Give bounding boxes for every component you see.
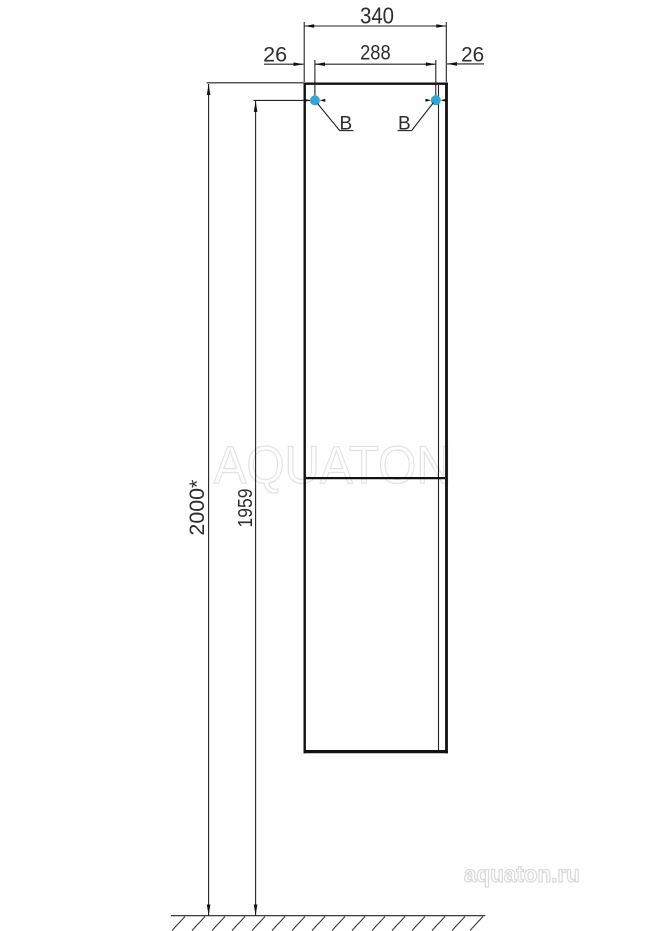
svg-text:26: 26 bbox=[263, 44, 287, 67]
svg-text:2000*: 2000* bbox=[186, 480, 209, 536]
svg-text:288: 288 bbox=[360, 42, 391, 65]
svg-text:B: B bbox=[339, 113, 352, 134]
svg-text:aquaton.ru: aquaton.ru bbox=[464, 861, 580, 887]
svg-text:B: B bbox=[398, 113, 411, 134]
svg-text:AQUATON: AQUATON bbox=[214, 436, 452, 495]
svg-text:340: 340 bbox=[360, 3, 394, 29]
svg-text:26: 26 bbox=[461, 44, 484, 67]
svg-text:1959: 1959 bbox=[235, 489, 257, 528]
